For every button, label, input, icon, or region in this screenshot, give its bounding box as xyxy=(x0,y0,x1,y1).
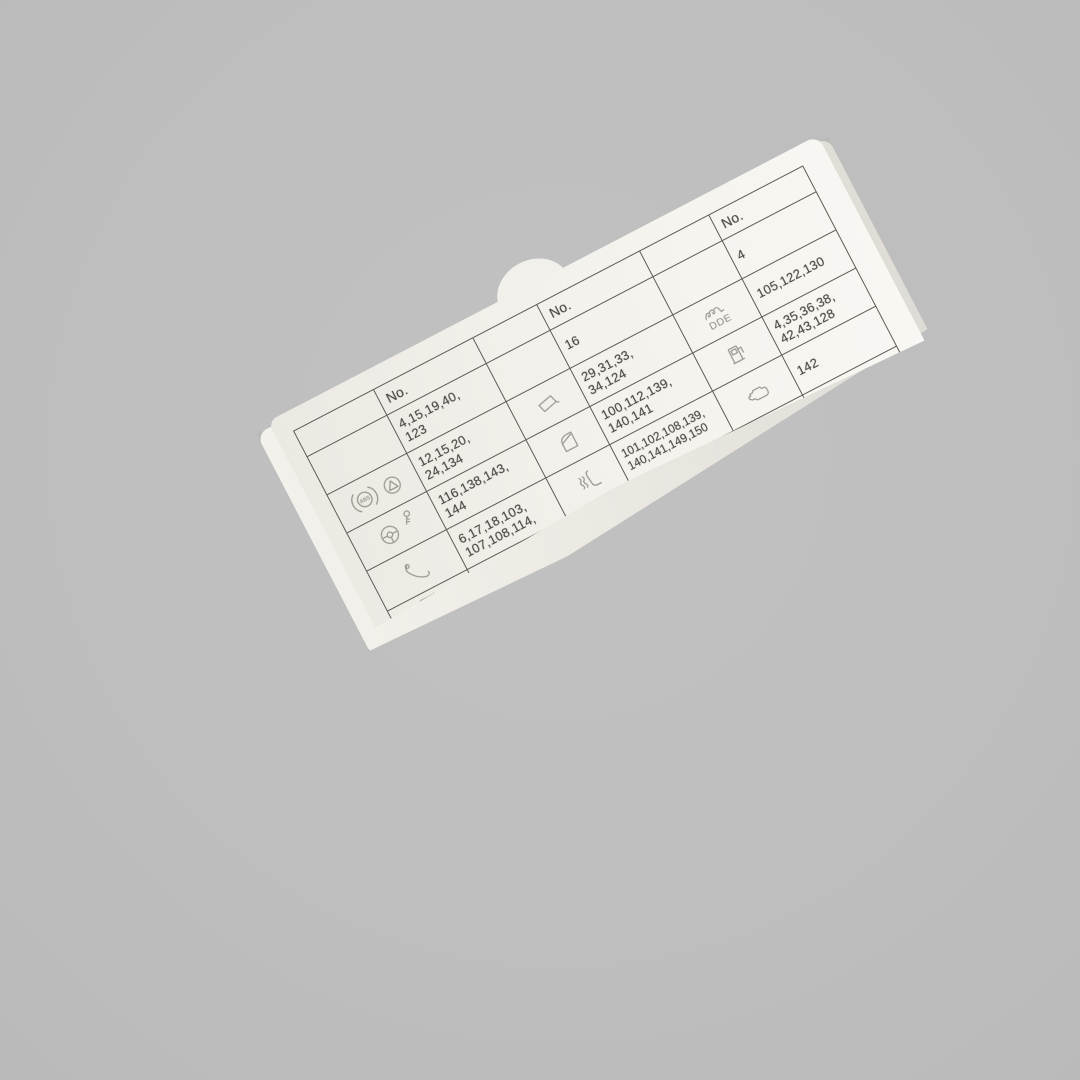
fuse-assignment-table: No. No. No. 4,15,19,40, 123 16 4 xyxy=(293,165,918,651)
card-face: No. No. No. 4,15,19,40, 123 16 4 xyxy=(268,135,926,630)
abs-icon: ABS xyxy=(345,481,384,518)
key-icon xyxy=(401,509,412,527)
heated-seat-icon xyxy=(571,464,606,499)
fuel-pump-icon xyxy=(722,338,753,369)
fuse-allocation-card: No. No. No. 4,15,19,40, 123 16 4 xyxy=(268,135,926,630)
traction-triangle-icon xyxy=(376,469,408,501)
engine-icon xyxy=(741,378,775,409)
phone-handset-icon xyxy=(399,553,434,588)
photo-backdrop: No. No. No. 4,15,19,40, 123 16 4 xyxy=(0,0,1080,1080)
mirror-icon xyxy=(531,388,564,420)
door-icon xyxy=(552,426,584,458)
